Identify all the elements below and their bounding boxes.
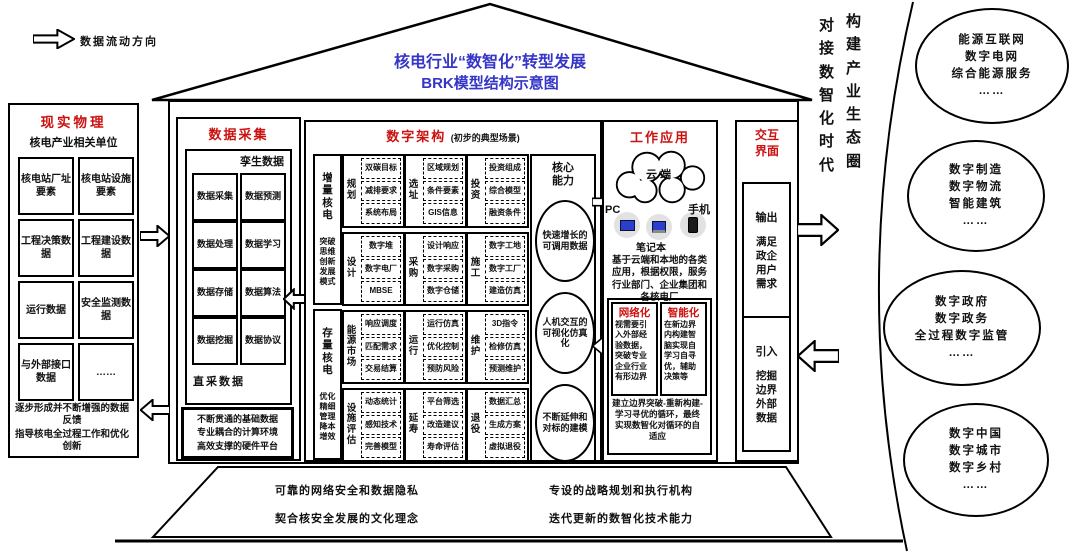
arch-item: 建造仿真 xyxy=(485,281,525,302)
foundation-line: 不断贯通的基础数据 xyxy=(197,413,278,426)
arch-item: 数据汇总 xyxy=(485,392,525,413)
title-line1: 核电行业“数智化”转型发展 xyxy=(330,48,650,72)
physical-title: 现实物理 xyxy=(10,111,137,131)
foundation-line: 专业耦合的计算环境 xyxy=(197,426,278,439)
arch-item: 预防风险 xyxy=(423,359,463,380)
bubble-line: 数字政府 xyxy=(935,294,989,311)
arch-item: 数字工地 xyxy=(485,236,525,257)
arch-item: 匹配需求 xyxy=(361,337,401,358)
arch-item: 3D指令 xyxy=(485,314,525,335)
arch-item: 数字堆 xyxy=(361,236,401,257)
architecture-panel: 数字架构 (初步的典型场景) 增量核电 突破思维创新发展模式 存量核电 优化精细… xyxy=(304,120,602,462)
network-title: 网络化 xyxy=(613,305,656,320)
pc-icon xyxy=(620,220,635,231)
diagram-title: 核电行业“数智化”转型发展 BRK模型结构示意图 xyxy=(330,48,650,93)
arch-item: 检修仿真 xyxy=(485,337,525,358)
intelligent-box: 智能化 在新边界内构建智脑实现自学习自寻优，辅助决策等 xyxy=(660,302,707,396)
network-box: 网络化 视需要引入外部经验数据，突破专业企业行业有形边界 xyxy=(611,302,658,396)
arch-item: 设计响应 xyxy=(423,236,463,257)
arch-group-energy-market: 能源市场 响应调度 匹配需求 交易结算 xyxy=(342,310,405,384)
arrow-ecosystem-to-input xyxy=(797,340,839,372)
bubble-line: 数字中国 xyxy=(949,426,1003,443)
pc-label: PC xyxy=(605,204,620,216)
strip-body: 优化精细管理降本增效 xyxy=(319,392,336,442)
arch-item: 寿命评估 xyxy=(423,437,463,458)
arch-item: 交易结算 xyxy=(361,359,401,380)
arch-item: 平台筛选 xyxy=(423,392,463,413)
twin-data-label: 孪生数据 xyxy=(240,153,284,169)
caption-build-ecosystem: 构建产业生态圈 xyxy=(845,10,862,173)
collection-cell: 数据预测 xyxy=(240,173,286,221)
foundation-right-line1: 专设的战略规划和执行机构 xyxy=(492,482,750,498)
bubble-line: …… xyxy=(979,83,1006,100)
physical-cell: …… xyxy=(78,343,134,401)
physical-cell: 核电站厂址要素 xyxy=(18,157,74,215)
arch-group-life-extension: 延寿 平台筛选 改造建议 寿命评估 xyxy=(404,388,467,462)
input-text: 挖掘边界外部数据 xyxy=(755,369,779,426)
arch-group-label: 退役 xyxy=(468,390,483,460)
laptop-badge xyxy=(646,214,672,240)
architecture-subtitle: (初步的典型场景) xyxy=(451,133,520,143)
interface-box: 输出 满足政企用户需求 引入 挖掘边界外部数据 xyxy=(742,182,791,452)
bubble-line: 数字电网 xyxy=(965,49,1019,66)
arch-group-label: 能源市场 xyxy=(344,312,359,382)
network-intelligent-box: 网络化 视需要引入外部经验数据，突破专业企业行业有形边界 智能化 在新边界内构建… xyxy=(607,298,712,455)
arrow-output-to-ecosystem xyxy=(797,214,839,246)
cloud-label: 云端 xyxy=(635,166,685,182)
architecture-title: 数字架构 xyxy=(386,129,446,144)
collection-cell: 数据挖掘 xyxy=(192,317,238,365)
collection-cell: 数据采集 xyxy=(192,173,238,221)
arch-group-design: 设计 数字堆 数字电厂 MBSE xyxy=(342,232,405,306)
arch-group-construction: 施工 数字工地 数字工厂 建造仿真 xyxy=(466,232,529,306)
core-bubble: 不断延伸和对标的建模 xyxy=(535,384,595,462)
collection-cell: 数据处理 xyxy=(192,221,238,269)
arch-item: 响应调度 xyxy=(361,314,401,335)
arch-item: 改造建议 xyxy=(423,415,463,436)
arch-item: 完善模型 xyxy=(361,437,401,458)
physical-panel: 现实物理 核电产业相关单位 核电站厂址要素 核电站设施要素 工程决策数据 工程建… xyxy=(8,103,139,458)
core-bubble: 人机交互的可视化仿真化 xyxy=(535,292,595,374)
ecosystem-bubble-government: 数字政府 数字政务 全过程数字监管 …… xyxy=(883,270,1041,386)
input-head: 引入 xyxy=(756,343,778,359)
application-title: 工作应用 xyxy=(604,127,716,146)
laptop-label: 笔记本 xyxy=(636,239,666,254)
collection-foundation-box: 不断贯通的基础数据 专业耦合的计算环境 高效支撑的硬件平台 xyxy=(181,407,294,459)
strip-body: 突破思维创新发展模式 xyxy=(319,237,336,287)
direct-data-label: 直采数据 xyxy=(193,373,245,389)
arch-group-decommission: 退役 数据汇总 生成方案 虚拟退役 xyxy=(466,388,529,462)
arch-group-label: 延寿 xyxy=(406,390,421,460)
twin-data-box: 孪生数据 数据采集 数据预测 数据处理 数据学习 数据存储 数据算法 数据挖掘 … xyxy=(185,149,292,405)
foundation-trapezoid xyxy=(153,467,831,537)
arch-group-procurement: 采购 设计响应 数字采购 数字仓储 xyxy=(404,232,467,306)
bubble-line: 数字乡村 xyxy=(949,460,1003,477)
application-desc: 基于云端和本地的各类应用，根据权限，服务行业部门、企业集团和各核电厂 xyxy=(608,255,711,304)
arch-item: 区域规划 xyxy=(423,158,463,179)
arch-item: 系统布局 xyxy=(361,203,401,224)
arch-group-label: 运行 xyxy=(406,312,421,382)
bubble-line: 能源互联网 xyxy=(958,32,1026,49)
ecosystem-bubble-china: 数字中国 数字城市 数字乡村 …… xyxy=(903,403,1049,517)
caption-connect-era: 对接数智化时代 xyxy=(818,14,835,177)
arch-group-label: 选址 xyxy=(406,156,421,226)
arch-item: 减排要求 xyxy=(361,181,401,202)
data-flow-arrow-icon xyxy=(33,29,75,49)
arch-item: 运行仿真 xyxy=(423,314,463,335)
arch-item: 数字采购 xyxy=(423,259,463,280)
physical-cell: 安全监测数据 xyxy=(78,281,134,339)
arch-group-label: 维护 xyxy=(468,312,483,382)
interface-output-cell: 输出 满足政企用户需求 xyxy=(744,184,789,318)
arch-item: 虚拟退役 xyxy=(485,437,525,458)
arch-item: 投资组成 xyxy=(485,158,525,179)
arch-group-facility-eval: 设施评估 动态统计 感知技术 完善模型 xyxy=(342,388,405,462)
bubble-line: …… xyxy=(949,345,976,362)
collection-cell: 数据学习 xyxy=(240,221,286,269)
arch-item: 感知技术 xyxy=(361,415,401,436)
bubble-line: 数字政务 xyxy=(935,311,989,328)
bubble-line: …… xyxy=(963,477,990,494)
physical-subtitle: 核电产业相关单位 xyxy=(10,134,137,150)
arch-item: 数字仓储 xyxy=(423,281,463,302)
phone-icon xyxy=(688,217,698,233)
strip-head: 增量核电 xyxy=(322,172,334,222)
arrow-feedback-to-physical xyxy=(140,399,170,421)
arch-item: MBSE xyxy=(361,281,401,302)
arch-item: 数字电厂 xyxy=(361,259,401,280)
bubble-line: 综合能源服务 xyxy=(952,66,1033,83)
physical-note1: 逐步形成并不断增强的数据反馈 xyxy=(13,403,131,428)
collection-cell: 数据协议 xyxy=(240,317,286,365)
arch-item: 双碳目标 xyxy=(361,158,401,179)
ecosystem-bubble-industry: 数字制造 数字物流 智能建筑 …… xyxy=(907,140,1045,252)
network-text: 视需要引入外部经验数据，突破专业企业行业有形边界 xyxy=(613,320,656,382)
arch-item: 融资条件 xyxy=(485,203,525,224)
bubble-line: 智能建筑 xyxy=(949,196,1003,213)
arch-item: 优化控制 xyxy=(423,337,463,358)
application-panel: 工作应用 云端 PC 手机 笔记本 基于云端和本地的各类应用，根据权限，服务行业… xyxy=(602,120,718,462)
title-line2: BRK模型结构示意图 xyxy=(330,72,650,93)
foundation-line: 高效支撑的硬件平台 xyxy=(197,440,278,453)
collection-cell: 数据存储 xyxy=(192,269,238,317)
physical-cell: 与外部接口数据 xyxy=(18,343,74,401)
collection-cell: 数据算法 xyxy=(240,269,286,317)
ecosystem-bubble-energy: 能源互联网 数字电网 综合能源服务 …… xyxy=(915,8,1069,124)
arch-group-label: 施工 xyxy=(468,234,483,304)
interface-input-cell: 引入 挖掘边界外部数据 xyxy=(744,318,789,450)
core-capability-box: 核心能力 快速增长的可调用数据 人机交互的可视化仿真化 不断延伸和对标的建模 xyxy=(530,154,596,464)
physical-cell: 运行数据 xyxy=(18,281,74,339)
physical-cell: 核电站设施要素 xyxy=(78,157,134,215)
physical-cell: 工程决策数据 xyxy=(18,219,74,277)
collection-title: 数据采集 xyxy=(178,124,299,143)
arch-group-operation: 运行 运行仿真 优化控制 预防风险 xyxy=(404,310,467,384)
arch-item: 预测维护 xyxy=(485,359,525,380)
legend-label: 数据流动方向 xyxy=(80,33,158,49)
strip-stock: 存量核电 优化精细管理降本增效 xyxy=(313,309,342,460)
intelligent-title: 智能化 xyxy=(662,305,705,320)
arch-item: 数字工厂 xyxy=(485,259,525,280)
brk-model-diagram: 数据流动方向 核电行业“数智化”转型发展 BRK模型结构示意图 现实物理 核电产… xyxy=(0,0,1080,553)
loop-text: 建立边界突破-重新构建-学习寻优的循环，最终实现数智化对循环的自适应 xyxy=(611,398,704,442)
arch-group-label: 投资 xyxy=(468,156,483,226)
arch-item: 生成方案 xyxy=(485,415,525,436)
bubble-line: 数字制造 xyxy=(949,162,1003,179)
arch-group-label: 规划 xyxy=(344,156,359,226)
physical-cell: 工程建设数据 xyxy=(78,219,134,277)
bubble-line: …… xyxy=(963,213,990,230)
arch-group-label: 采购 xyxy=(406,234,421,304)
arch-group-maintenance: 维护 3D指令 检修仿真 预测维护 xyxy=(466,310,529,384)
arch-item: 动态统计 xyxy=(361,392,401,413)
arch-item: GIS信息 xyxy=(423,203,463,224)
physical-note2: 指导核电全过程工作和优化创新 xyxy=(13,429,131,454)
foundation-left-line2: 契合核安全发展的文化理念 xyxy=(218,510,476,526)
arrow-physical-to-collection xyxy=(140,225,170,247)
output-head: 输出 xyxy=(756,209,778,225)
foundation-right-line2: 迭代更新的数智化技术能力 xyxy=(492,510,750,526)
intelligent-text: 在新边界内构建智脑实现自学习自寻优，辅助决策等 xyxy=(662,320,705,382)
arch-group-investment: 投资 投资组成 综合模型 融资条件 xyxy=(466,154,529,228)
bubble-line: 数字物流 xyxy=(949,179,1003,196)
foundation-left-line1: 可靠的网络安全和数据隐私 xyxy=(218,482,476,498)
interface-title: 交互界面 xyxy=(752,128,782,159)
arch-group-siting: 选址 区域规划 条件要素 GIS信息 xyxy=(404,154,467,228)
arch-group-label: 设施评估 xyxy=(344,390,359,460)
strip-incremental: 增量核电 突破思维创新发展模式 xyxy=(313,154,342,305)
core-capability-title: 核心能力 xyxy=(550,162,576,188)
output-text: 满足政企用户需求 xyxy=(755,235,779,292)
arch-item: 条件要素 xyxy=(423,181,463,202)
bubble-line: 全过程数字监管 xyxy=(915,328,1010,345)
arch-item: 综合模型 xyxy=(485,181,525,202)
arch-group-planning: 规划 双碳目标 减排要求 系统布局 xyxy=(342,154,405,228)
laptop-icon xyxy=(652,221,666,233)
bubble-line: 数字城市 xyxy=(949,443,1003,460)
arch-group-label: 设计 xyxy=(344,234,359,304)
phone-label: 手机 xyxy=(688,201,710,217)
strip-head: 存量核电 xyxy=(322,327,334,377)
core-bubble: 快速增长的可调用数据 xyxy=(535,200,595,282)
interface-panel: 交互界面 输出 满足政企用户需求 引入 挖掘边界外部数据 xyxy=(735,120,799,462)
